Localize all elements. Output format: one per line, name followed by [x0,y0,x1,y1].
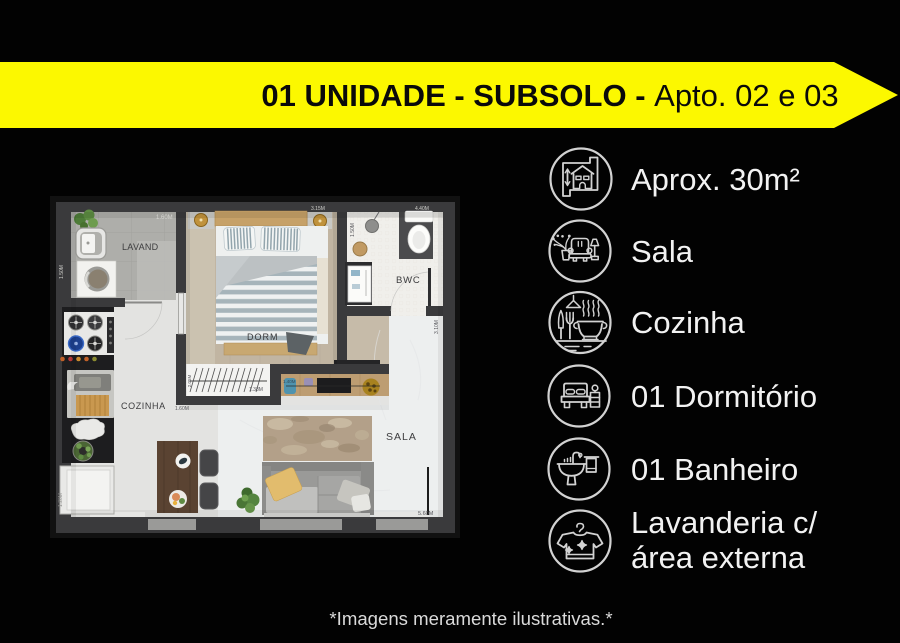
svg-text:Aprox. 30m²: Aprox. 30m² [631,162,800,197]
svg-text:DORM: DORM [247,332,279,342]
svg-text:1.50M: 1.50M [59,265,65,279]
svg-text:SALA: SALA [386,431,417,443]
svg-text:5.60M: 5.60M [418,511,434,517]
svg-text:3.10M: 3.10M [434,320,440,334]
svg-text:3.15M: 3.15M [311,206,325,212]
svg-text:*Imagens meramente ilustrativa: *Imagens meramente ilustrativas.* [329,608,612,629]
svg-text:COZINHA: COZINHA [121,401,166,411]
svg-text:Cozinha: Cozinha [631,305,745,340]
svg-text:01 Banheiro: 01 Banheiro [631,452,798,487]
svg-text:Sala: Sala [631,234,694,269]
svg-text:LAVAND: LAVAND [122,242,159,252]
svg-text:1.38M: 1.38M [249,387,263,393]
svg-text:2.05M: 2.05M [187,374,192,387]
svg-text:1.50M: 1.50M [350,223,356,237]
svg-text:1.40M: 1.40M [283,379,296,384]
svg-text:01 UNIDADE - SUBSOLO - Apto. 0: 01 UNIDADE - SUBSOLO - Apto. 02 e 03 [261,78,838,113]
svg-text:BWC: BWC [396,275,421,286]
svg-text:1.60M: 1.60M [175,406,189,412]
svg-text:01 Dormitório: 01 Dormitório [631,379,817,414]
svg-text:Lavanderia c/: Lavanderia c/ [631,505,818,540]
svg-text:1.60M: 1.60M [156,215,173,221]
svg-text:1.20M: 1.20M [58,493,64,507]
svg-text:4.40M: 4.40M [415,206,429,212]
svg-text:área externa: área externa [631,540,806,575]
